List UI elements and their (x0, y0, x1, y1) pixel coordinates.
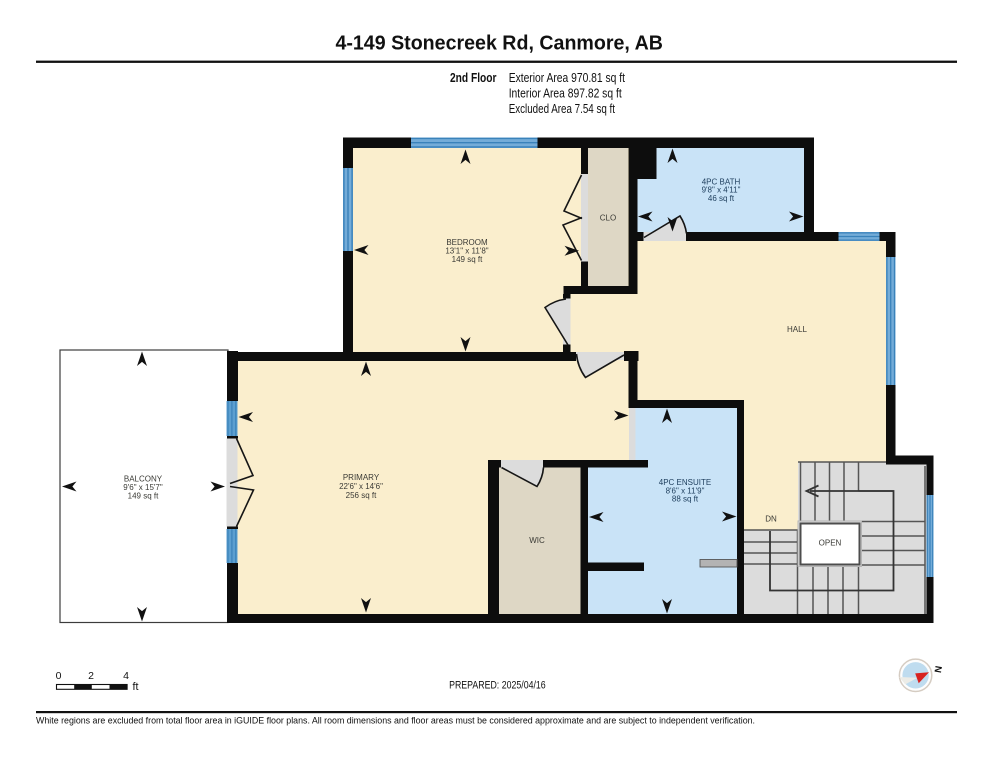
svg-text:PRIMARY: PRIMARY (343, 473, 380, 482)
svg-text:HALL: HALL (787, 325, 808, 334)
svg-text:ft: ft (133, 681, 139, 693)
svg-text:Excluded Area 7.54 sq ft: Excluded Area 7.54 sq ft (509, 101, 616, 116)
svg-text:2: 2 (88, 670, 94, 682)
svg-text:2nd Floor: 2nd Floor (450, 71, 497, 85)
svg-text:4-149 Stonecreek Rd, Canmore,: 4-149 Stonecreek Rd, Canmore, AB (335, 32, 663, 55)
svg-text:DN: DN (765, 514, 777, 523)
svg-text:46 sq ft: 46 sq ft (708, 194, 735, 203)
svg-text:88 sq ft: 88 sq ft (672, 495, 699, 504)
svg-text:White regions are excluded fro: White regions are excluded from total fl… (36, 715, 755, 725)
svg-text:PREPARED: 2025/04/16: PREPARED: 2025/04/16 (449, 680, 546, 692)
svg-text:0: 0 (56, 670, 62, 682)
svg-text:N: N (931, 665, 943, 674)
svg-text:CLO: CLO (600, 213, 616, 222)
svg-text:149 sq ft: 149 sq ft (128, 491, 159, 500)
svg-text:4: 4 (123, 670, 129, 682)
svg-text:Interior Area 897.82 sq ft: Interior Area 897.82 sq ft (509, 86, 622, 101)
svg-text:256 sq ft: 256 sq ft (346, 491, 377, 500)
svg-text:Exterior Area 970.81 sq ft: Exterior Area 970.81 sq ft (509, 70, 626, 85)
svg-text:149 sq ft: 149 sq ft (452, 255, 483, 264)
svg-text:OPEN: OPEN (819, 539, 842, 548)
svg-text:22'6" x 14'6": 22'6" x 14'6" (339, 482, 383, 491)
svg-text:WIC: WIC (529, 536, 545, 545)
